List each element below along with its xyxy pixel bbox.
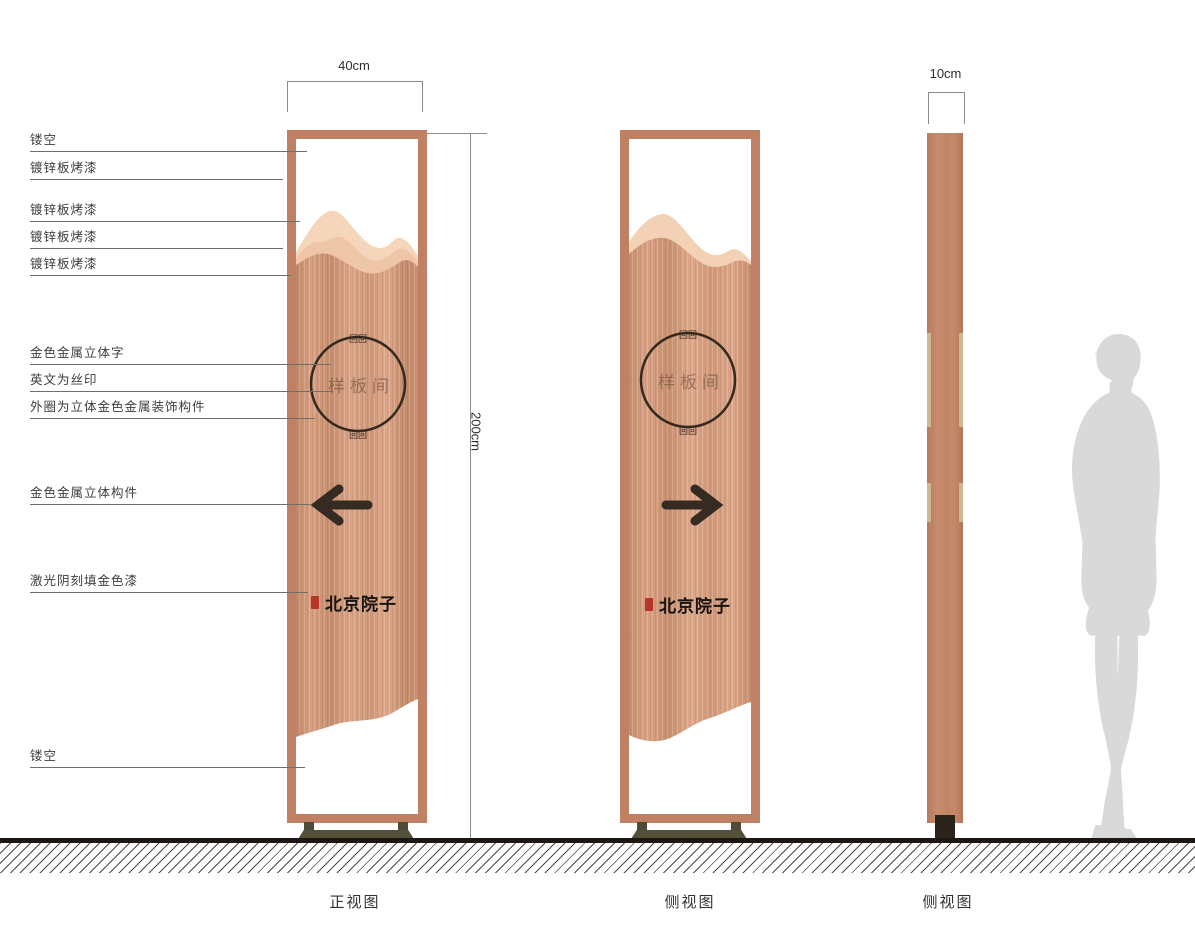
greek-key-ornament-top: 回回 — [349, 334, 367, 344]
human-silhouette — [1032, 330, 1180, 846]
annotation-hollow-top: 镂空 — [30, 133, 307, 152]
height-dimension: 200cm — [469, 402, 484, 462]
side-pillar-foot-right — [731, 822, 741, 831]
view-label-side: 侧视图 — [640, 891, 740, 912]
greek-key-ornament-bottom: 回回 — [349, 430, 367, 440]
annotation-hollow-bottom: 镂空 — [30, 749, 305, 768]
side-pillar-foot-left — [637, 822, 647, 831]
view-label-profile: 侧视图 — [898, 891, 998, 912]
profile-protrusion-arrow-left — [927, 483, 931, 522]
profile-pillar-base — [935, 815, 955, 839]
profile-protrusion-arrow-right — [959, 483, 963, 522]
greek-key-ornament-top: 回回 — [679, 330, 697, 340]
room-name-text: 样板间 — [658, 373, 724, 392]
front-view-pillar: 回回 回回 样板间 北京院子 — [287, 130, 427, 823]
profile-view-pillar — [927, 133, 963, 823]
copper-body-texture — [296, 253, 418, 737]
side-view-pillar: 回回 回回 样板间 北京院子 — [620, 130, 760, 823]
side-width-dimension: 10cm — [898, 66, 993, 81]
annotation-gold-metal-3d-component: 金色金属立体构件 — [30, 486, 310, 505]
annotation-galvanized-paint-1: 镀锌板烤漆 — [30, 161, 283, 180]
profile-protrusion-ring-right — [959, 333, 963, 427]
ground-hatch — [0, 843, 1195, 873]
annotation-galvanized-paint-2: 镀锌板烤漆 — [30, 203, 300, 222]
height-dimension-line — [470, 133, 471, 838]
view-label-front: 正视图 — [305, 891, 405, 912]
brand-calligraphy: 北京院子 — [659, 596, 731, 617]
profile-protrusion-ring-left — [927, 333, 931, 427]
greek-key-ornament-bottom: 回回 — [679, 426, 697, 436]
ground-line — [0, 838, 1195, 843]
side-width-bracket — [928, 92, 965, 124]
brand-calligraphy: 北京院子 — [325, 594, 397, 615]
annotation-english-silkscreen: 英文为丝印 — [30, 373, 333, 392]
room-name-text: 样板间 — [328, 377, 394, 396]
height-dimension-tick — [427, 133, 487, 134]
copper-body-texture — [629, 238, 751, 742]
front-pillar-foot-left — [304, 822, 314, 831]
annotation-laser-engraving-gold: 激光阴刻填金色漆 — [30, 574, 308, 593]
front-width-dimension: 40cm — [287, 58, 421, 73]
front-width-bracket — [287, 81, 423, 112]
red-seal-icon — [645, 598, 653, 611]
annotation-galvanized-paint-3: 镀锌板烤漆 — [30, 230, 283, 249]
annotation-gold-metal-3d-text: 金色金属立体字 — [30, 346, 331, 365]
annotation-outer-ring-decoration: 外圈为立体金色金属装饰构件 — [30, 400, 315, 419]
signage-design-drawing: 镂空 镀锌板烤漆 镀锌板烤漆 镀锌板烤漆 镀锌板烤漆 金色金属立体字 英文为丝印… — [0, 0, 1195, 927]
annotation-galvanized-paint-4: 镀锌板烤漆 — [30, 257, 291, 276]
red-seal-icon — [311, 596, 319, 609]
front-pillar-foot-right — [398, 822, 408, 831]
